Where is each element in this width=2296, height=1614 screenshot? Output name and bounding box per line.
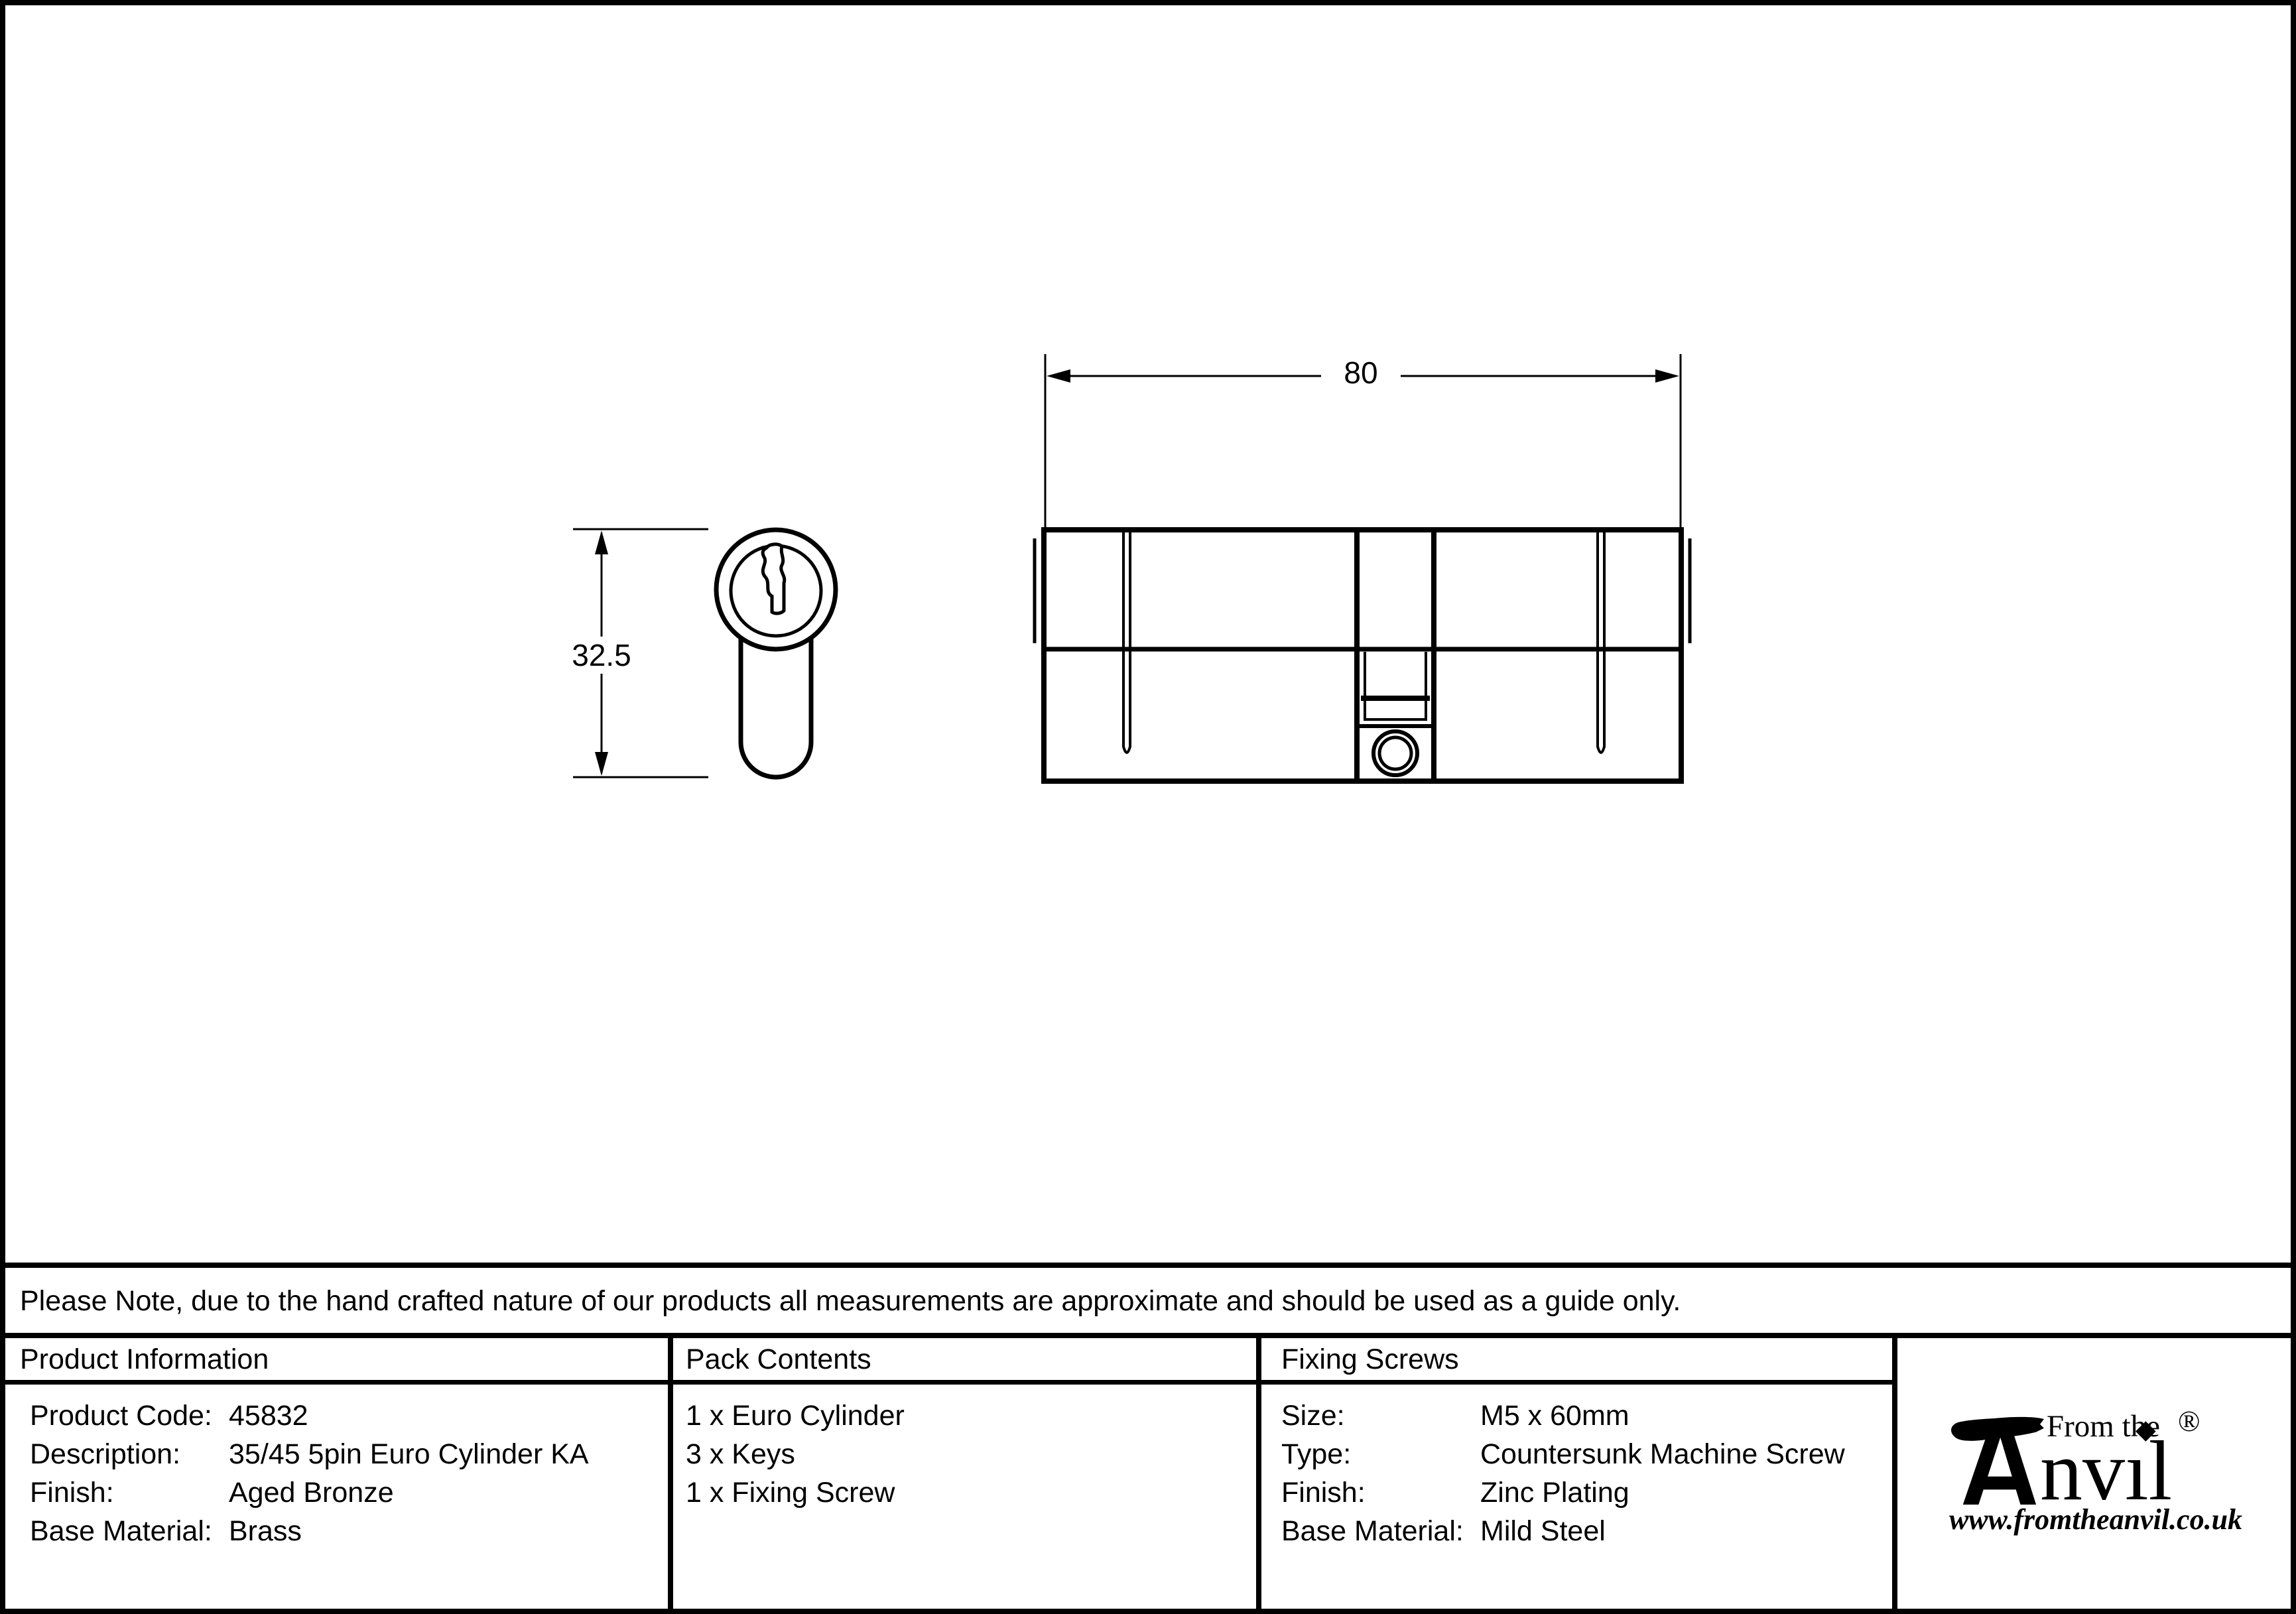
divider-col1-col2 <box>668 1333 673 1609</box>
row-value: Brass <box>229 1515 302 1547</box>
row-label: Size: <box>1281 1397 1480 1435</box>
row-value: Zinc Plating <box>1480 1477 1629 1509</box>
list-item: 3 x Keys <box>686 1435 905 1473</box>
table-row: Product Code:45832 <box>30 1397 589 1435</box>
table-row: Base Material:Brass <box>30 1512 589 1550</box>
table-row: Finish:Zinc Plating <box>1281 1473 1845 1512</box>
list-item: 1 x Euro Cylinder <box>686 1397 905 1435</box>
logo-diamond-icon: ◆ <box>2136 1416 2156 1443</box>
header-product-information: Product Information <box>20 1341 269 1378</box>
pack-contents-cell: 1 x Euro Cylinder 3 x Keys 1 x Fixing Sc… <box>686 1397 905 1512</box>
row-value: Aged Bronze <box>229 1477 394 1509</box>
row-label: Finish: <box>30 1473 229 1512</box>
divider-col3-logo <box>1892 1333 1897 1609</box>
divider-col2-col3 <box>1256 1333 1261 1609</box>
header-pack-contents: Pack Contents <box>686 1341 871 1378</box>
row-value: Mild Steel <box>1480 1515 1606 1547</box>
row-label: Base Material: <box>1281 1512 1480 1550</box>
cylinder-front-view <box>716 530 836 777</box>
divider-table-header <box>5 1380 1895 1385</box>
table-row: Finish:Aged Bronze <box>30 1473 589 1512</box>
product-information-cell: Product Code:45832 Description:35/45 5pi… <box>30 1397 589 1550</box>
anvil-icon <box>1948 1416 2047 1505</box>
row-label: Finish: <box>1281 1473 1480 1512</box>
row-value: Countersunk Machine Screw <box>1480 1438 1845 1470</box>
cylinder-technical-drawing <box>0 0 2296 1267</box>
list-item: 1 x Fixing Screw <box>686 1473 905 1512</box>
table-row: Description:35/45 5pin Euro Cylinder KA <box>30 1435 589 1473</box>
row-value: 45832 <box>229 1400 308 1432</box>
measurement-note: Please Note, due to the hand crafted nat… <box>20 1282 1681 1320</box>
table-row: Size:M5 x 60mm <box>1281 1397 1845 1435</box>
row-label: Base Material: <box>30 1512 229 1550</box>
row-label: Type: <box>1281 1435 1480 1473</box>
row-label: Product Code: <box>30 1397 229 1435</box>
registered-trademark-icon: ® <box>2178 1407 2200 1436</box>
row-label: Description: <box>30 1435 229 1473</box>
height-dimension-label: 32.5 <box>554 637 649 674</box>
divider-drawing-note <box>0 1263 2296 1268</box>
fixing-screws-cell: Size:M5 x 60mm Type:Countersunk Machine … <box>1281 1397 1845 1550</box>
product-spec-sheet: 80 32.5 Please Note, due to the hand cra… <box>0 0 2296 1614</box>
header-fixing-screws: Fixing Screws <box>1281 1341 1459 1378</box>
table-row: Base Material:Mild Steel <box>1281 1512 1845 1550</box>
row-value: 35/45 5pin Euro Cylinder KA <box>229 1438 589 1470</box>
cylinder-side-view <box>1035 530 1690 781</box>
table-row: Type:Countersunk Machine Screw <box>1281 1435 1845 1473</box>
logo-wordmark: nvıl <box>2040 1438 2172 1504</box>
row-value: M5 x 60mm <box>1480 1400 1629 1432</box>
logo-website: www.fromtheanvil.co.uk <box>1948 1503 2243 1537</box>
width-dimension-label: 80 <box>1321 354 1401 391</box>
divider-note-table <box>0 1333 2296 1338</box>
